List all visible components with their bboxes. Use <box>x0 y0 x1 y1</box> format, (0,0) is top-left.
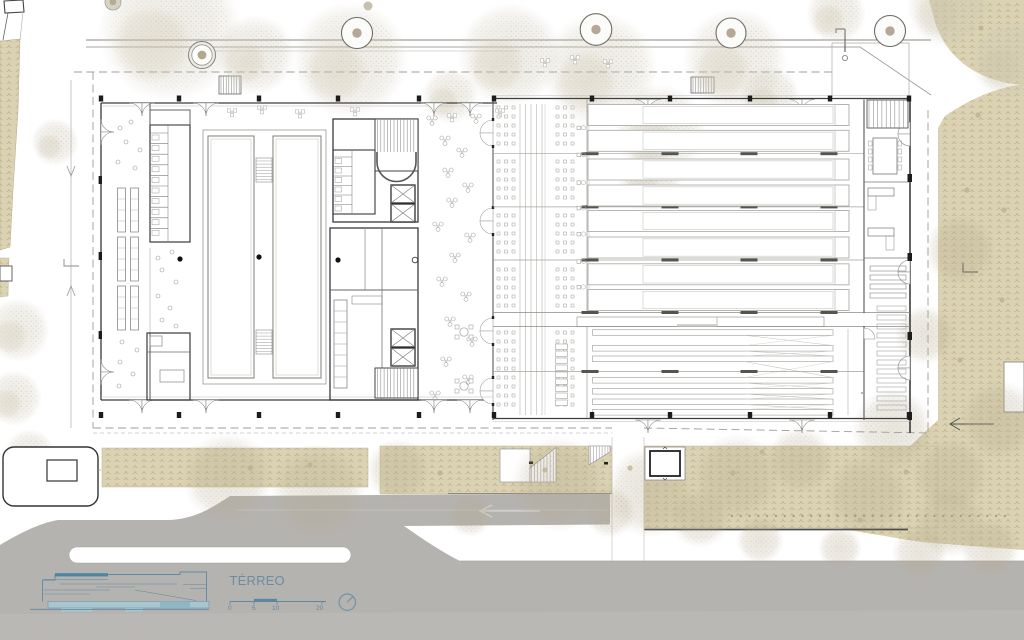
svg-text:TÉRREO: TÉRREO <box>230 573 285 588</box>
svg-text:0: 0 <box>228 605 232 612</box>
svg-text:x: x <box>861 390 863 395</box>
svg-text:20: 20 <box>316 605 324 612</box>
svg-text:10: 10 <box>272 605 280 612</box>
svg-text:5: 5 <box>252 605 256 612</box>
